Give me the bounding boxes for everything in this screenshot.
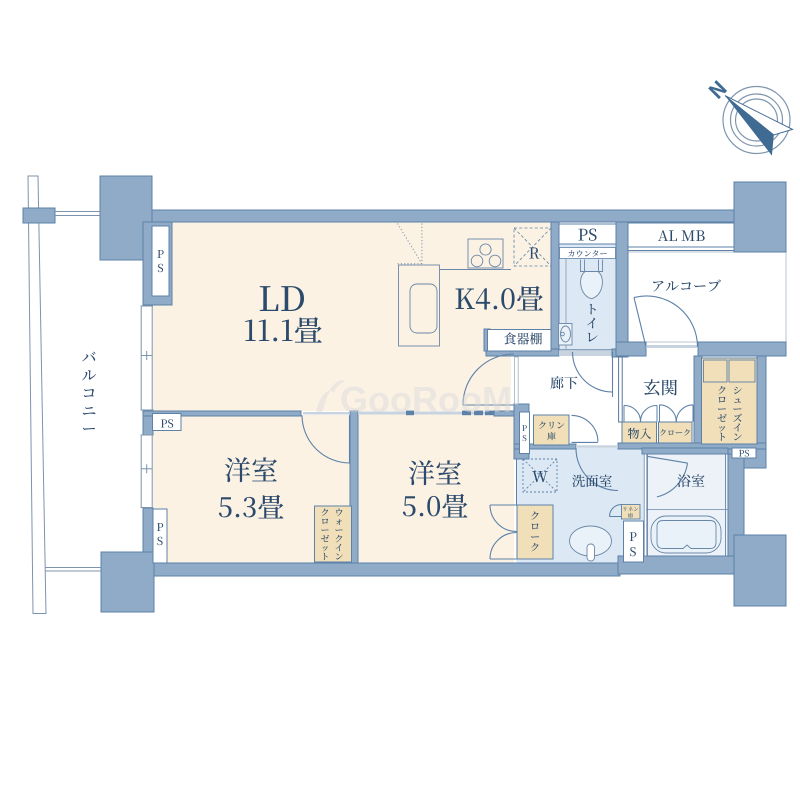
svg-text:GooRooM: GooRooM [340, 379, 512, 420]
